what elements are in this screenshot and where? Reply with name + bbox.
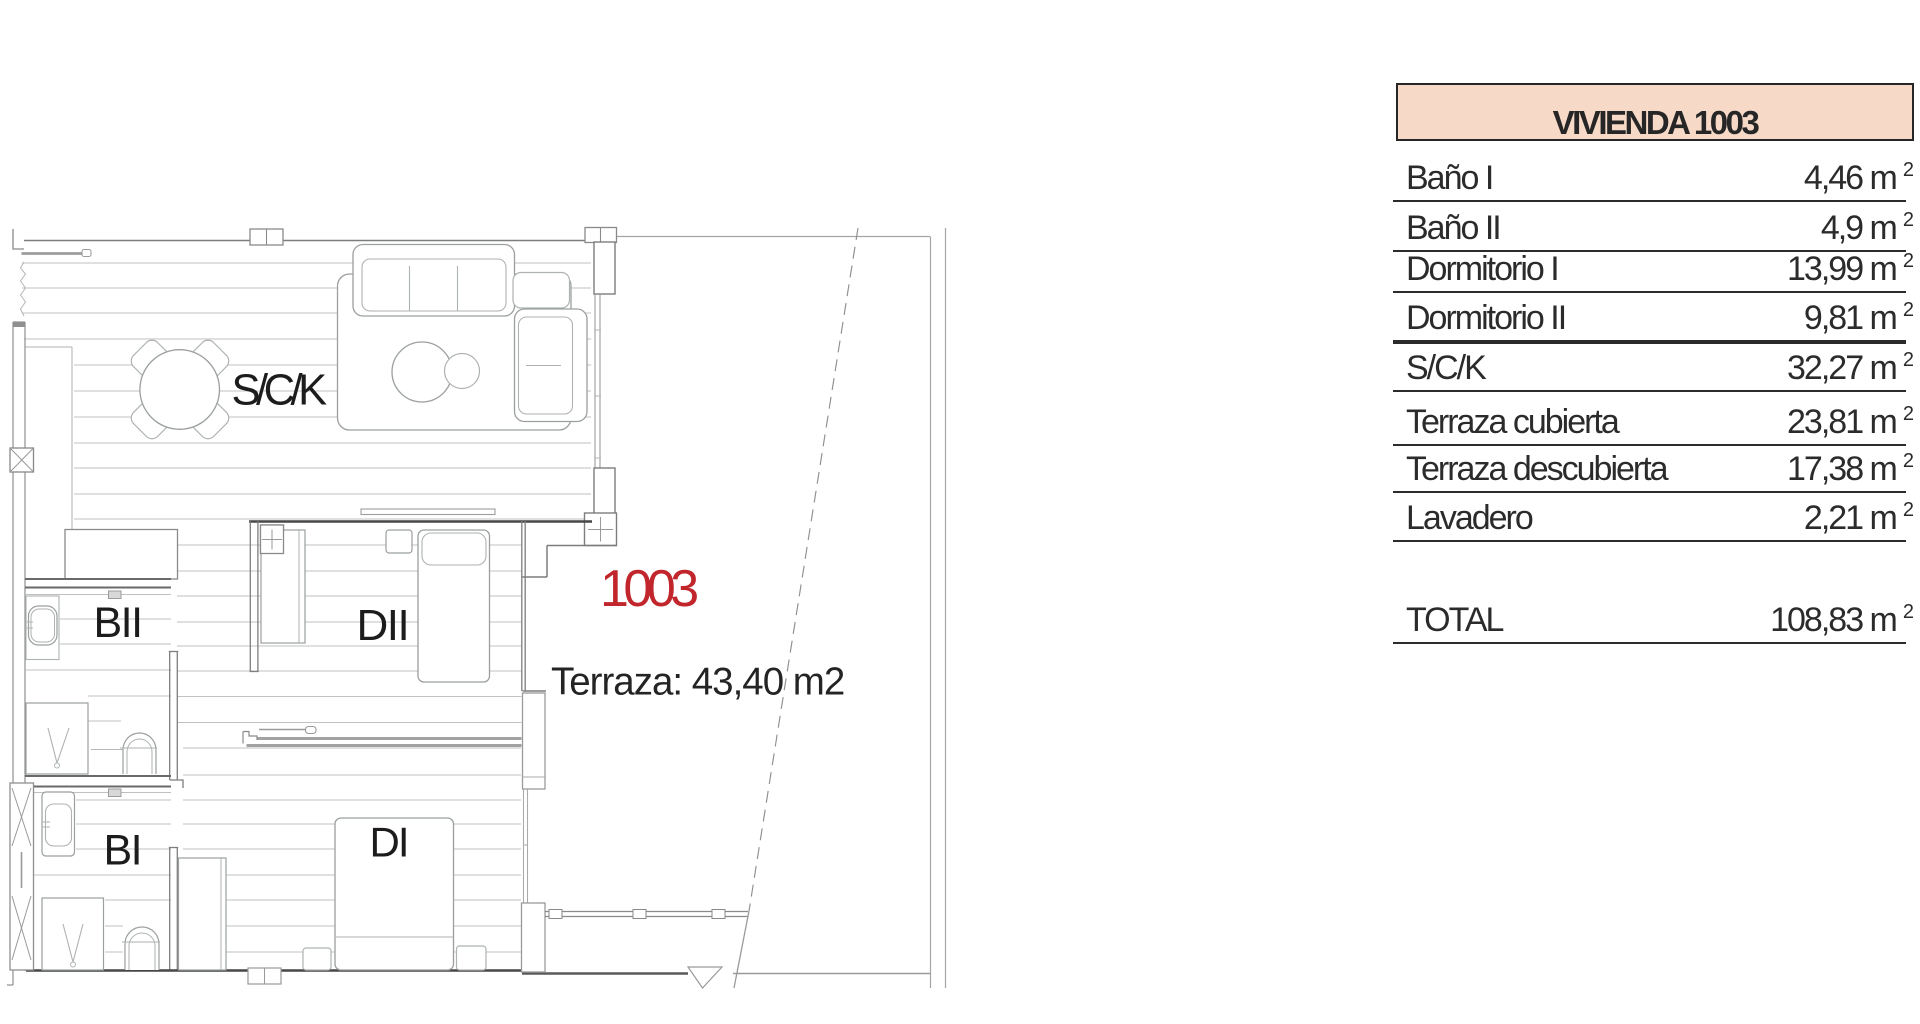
svg-text:Terraza: 43,40 m2: Terraza: 43,40 m2 (551, 661, 844, 704)
svg-text:1003: 1003 (600, 560, 697, 618)
svg-text:BI: BI (104, 827, 142, 875)
svg-text:S/C/K: S/C/K (232, 367, 328, 415)
svg-text:DII: DII (357, 601, 409, 650)
svg-text:BII: BII (94, 599, 142, 647)
svg-text:DI: DI (370, 819, 408, 866)
